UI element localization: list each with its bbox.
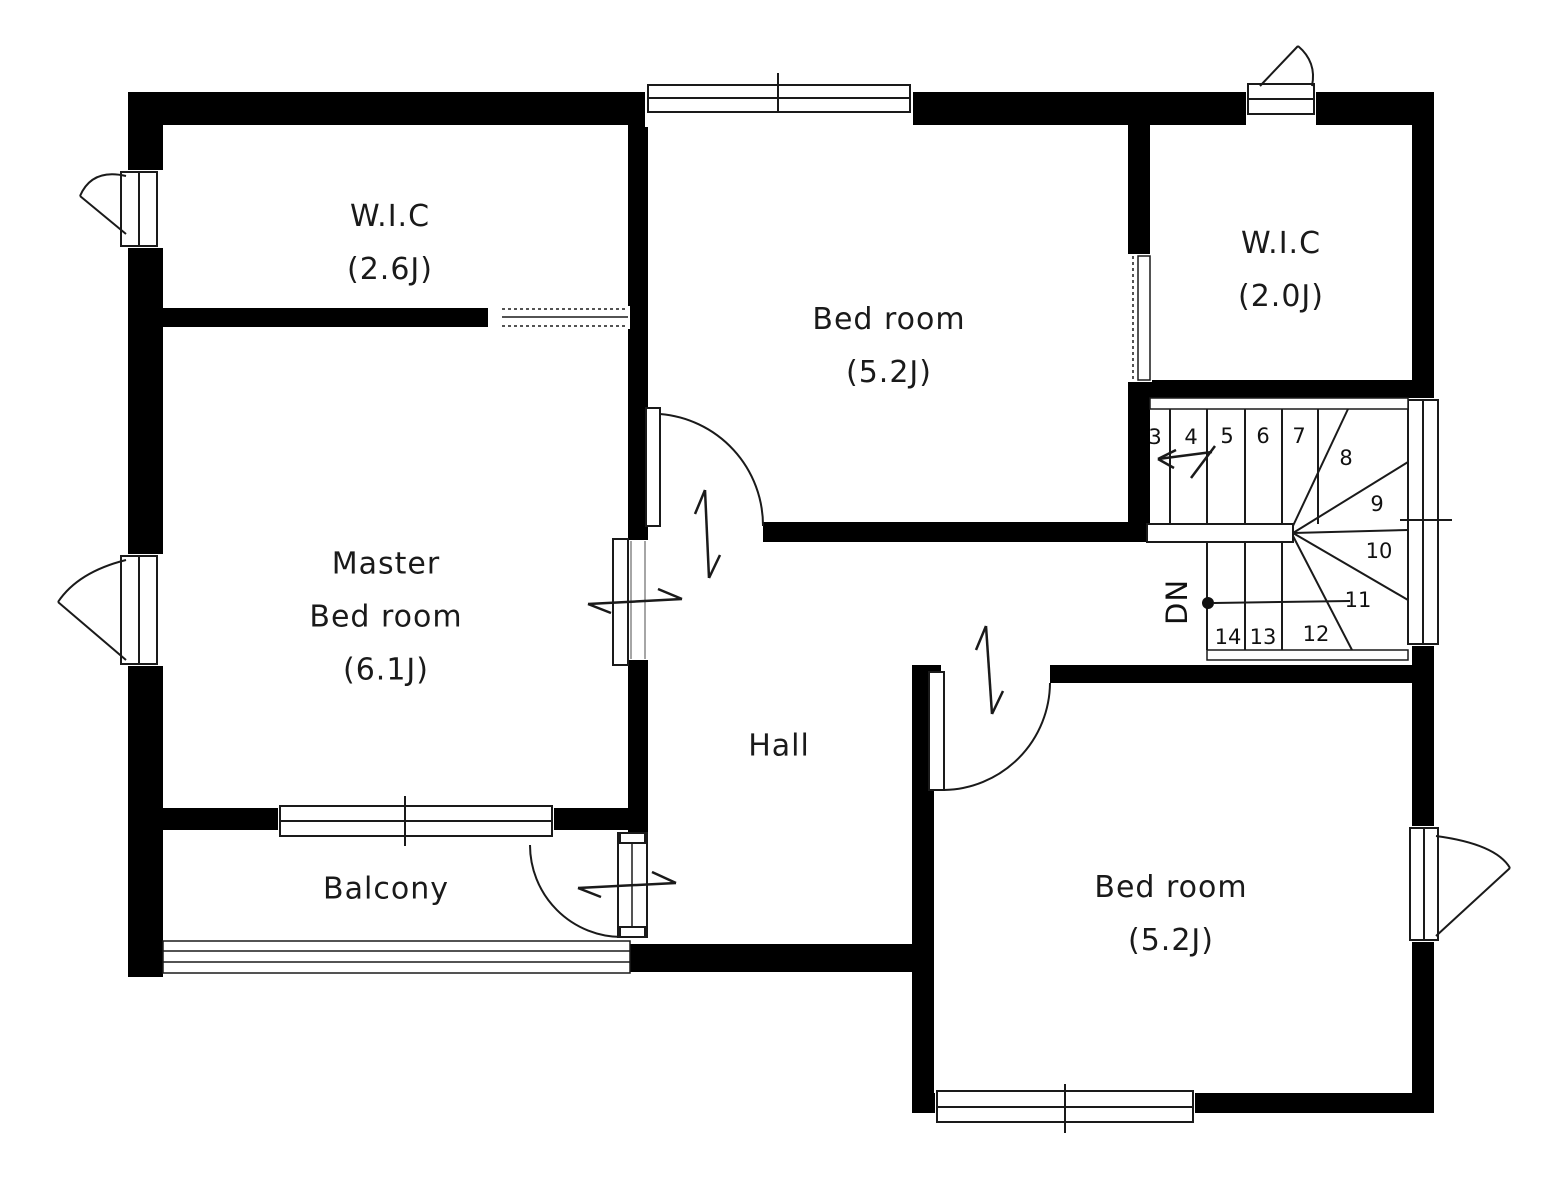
stair-step-number: 4 (1184, 425, 1197, 449)
room-name: Bed room (1094, 861, 1247, 914)
label-master-bedroom: Master Bed room (6.1J) (309, 538, 462, 697)
stair-step-number: 5 (1220, 424, 1233, 448)
awning-swing-icon (58, 560, 126, 602)
stair-step-number: 8 (1339, 446, 1352, 470)
room-size: (2.0J) (1238, 270, 1324, 323)
awning-swing-icon (58, 602, 126, 660)
room-name: Hall (748, 720, 810, 773)
label-hall: Hall (748, 720, 810, 773)
room-name: W.I.C (1238, 217, 1324, 270)
label-wic-upper-left: W.I.C (2.6J) (347, 190, 433, 296)
stair-bottom-edge (1207, 650, 1408, 660)
room-size: (5.2J) (812, 346, 965, 399)
room-name: Bed room (812, 293, 965, 346)
plan-linework (0, 0, 1558, 1198)
window-wic-left (80, 172, 157, 246)
stair-step-number: 3 (1148, 425, 1161, 449)
window-master-balcony (280, 796, 552, 846)
door-swing-arrow-icon (695, 490, 720, 578)
stair-down-label: DN (1160, 579, 1194, 625)
stair-step-number: 6 (1256, 424, 1269, 448)
balcony-railing (163, 941, 630, 973)
stair-step-number: 13 (1250, 625, 1277, 649)
label-bedroom-top: Bed room (5.2J) (812, 293, 965, 399)
label-bedroom-bottom: Bed room (5.2J) (1094, 861, 1247, 967)
room-size: (5.2J) (1094, 914, 1247, 967)
label-balcony: Balcony (323, 863, 449, 916)
room-name: Balcony (323, 863, 449, 916)
label-wic-upper-right: W.I.C (2.0J) (1238, 217, 1324, 323)
awning-swing-icon (80, 196, 126, 234)
stair-step-number: 9 (1370, 492, 1383, 516)
stair-step-number: 11 (1345, 588, 1372, 612)
window-bedroom-top (648, 73, 910, 112)
stair-step-number: 12 (1303, 622, 1330, 646)
awning-swing-icon (1436, 836, 1510, 868)
sliding-arrow-master-icon (588, 589, 682, 613)
room-name: Master (309, 538, 462, 591)
window-staircase (1400, 400, 1452, 644)
stair-step-number: 14 (1215, 625, 1242, 649)
window-bedroom-bottom (937, 1084, 1193, 1133)
awning-swing-icon (1298, 46, 1313, 86)
stair-step-number: 7 (1292, 424, 1305, 448)
stair-step-number: 10 (1366, 539, 1393, 563)
window-wic-upper-right (1248, 46, 1314, 114)
room-name: W.I.C (347, 190, 433, 243)
stair-top-landing-edge (1150, 398, 1408, 409)
floor-plan: W.I.C (2.6J) Bed room (5.2J) W.I.C (2.0J… (0, 0, 1558, 1198)
window-master-left (58, 556, 157, 664)
stair-handrail (1147, 524, 1293, 542)
awning-swing-icon (80, 174, 126, 196)
awning-swing-icon (1260, 46, 1298, 86)
door-swing-arrow-icon (976, 626, 1003, 714)
room-size: (6.1J) (309, 644, 462, 697)
room-name: Bed room (309, 591, 462, 644)
window-bedroom-right (1410, 828, 1510, 940)
room-size: (2.6J) (347, 243, 433, 296)
awning-swing-icon (1436, 868, 1510, 936)
stair-path-line (1214, 601, 1350, 603)
stair-path-start-dot (1202, 597, 1214, 609)
door-bedroom-top (646, 408, 763, 526)
